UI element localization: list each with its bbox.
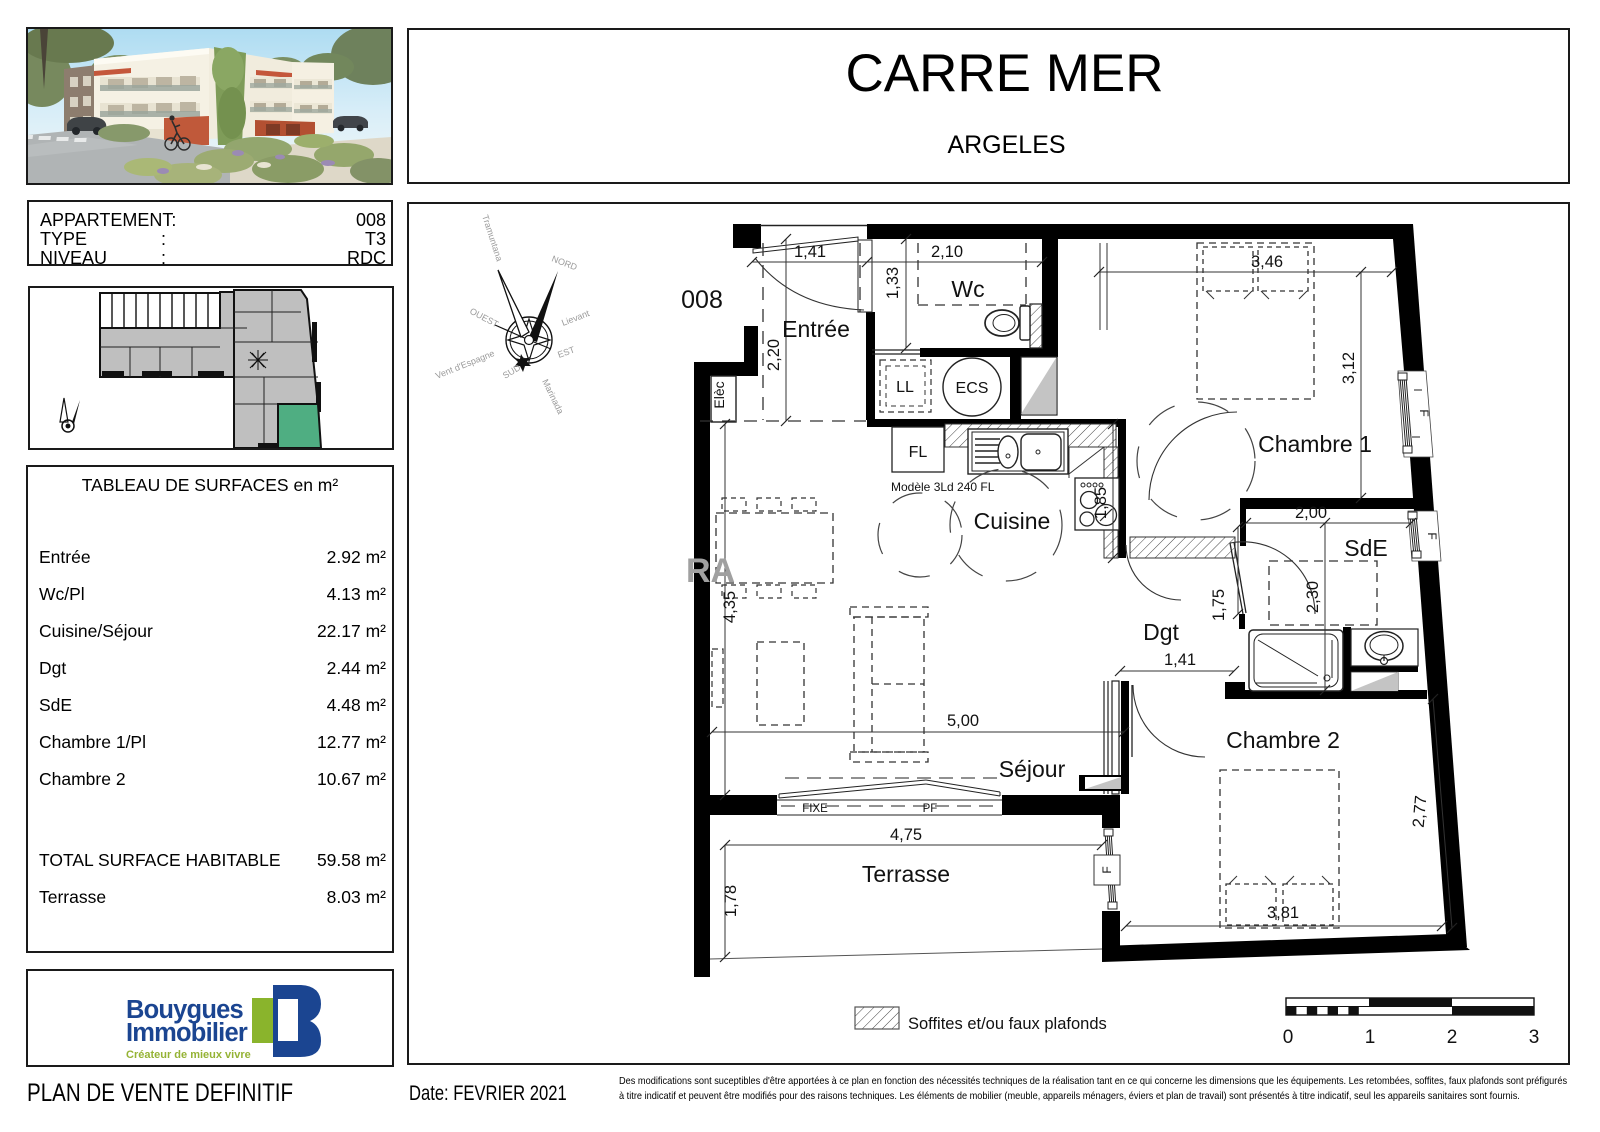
svg-text:1,75: 1,75	[1210, 589, 1228, 621]
svg-text:ECS: ECS	[956, 380, 989, 397]
svg-text:F: F	[1100, 866, 1114, 873]
svg-text:Terrasse: Terrasse	[862, 861, 950, 887]
svg-text:Vent d'Espagne: Vent d'Espagne	[434, 348, 496, 381]
svg-text:2,30: 2,30	[1304, 581, 1322, 613]
svg-text:1,85: 1,85	[1092, 487, 1110, 519]
svg-text:Soffites et/ou faux plafonds: Soffites et/ou faux plafonds	[908, 1015, 1107, 1033]
svg-text:2,00: 2,00	[1295, 504, 1327, 522]
svg-text:0: 0	[1283, 1027, 1294, 1048]
svg-text:2,20: 2,20	[765, 339, 783, 371]
svg-text:Créateur de mieux vivre: Créateur de mieux vivre	[126, 1049, 251, 1061]
svg-text:Immobilier: Immobilier	[126, 1019, 248, 1047]
svg-text:SdE: SdE	[1344, 535, 1387, 561]
svg-text:3,46: 3,46	[1251, 253, 1283, 271]
svg-text:3,12: 3,12	[1340, 352, 1358, 384]
svg-text:1,33: 1,33	[884, 267, 902, 299]
svg-text:F: F	[1417, 409, 1431, 416]
svg-text:Wc: Wc	[951, 276, 984, 302]
svg-text:2,10: 2,10	[931, 243, 963, 261]
svg-text:LL: LL	[896, 379, 914, 396]
svg-text:Séjour: Séjour	[999, 756, 1066, 782]
svg-text:2,77: 2,77	[1410, 795, 1431, 829]
svg-text:4,35: 4,35	[721, 591, 739, 623]
svg-text:Dgt: Dgt	[1143, 619, 1179, 645]
svg-text:1,41: 1,41	[1164, 651, 1196, 669]
svg-text:NORD: NORD	[550, 254, 579, 273]
svg-text:5,00: 5,00	[947, 712, 979, 730]
svg-text:OUEST: OUEST	[468, 306, 501, 330]
svg-text:EST: EST	[556, 344, 576, 360]
svg-text:008: 008	[681, 286, 723, 314]
svg-text:3,81: 3,81	[1267, 904, 1299, 922]
svg-text:RA: RA	[686, 552, 735, 590]
svg-text:F: F	[1425, 532, 1439, 539]
svg-text:1,41: 1,41	[794, 243, 826, 261]
svg-text:Lievant: Lievant	[560, 308, 591, 328]
svg-text:Modèle 3Ld 240 FL: Modèle 3Ld 240 FL	[891, 480, 995, 494]
svg-text:FL: FL	[909, 444, 928, 461]
svg-text:Entrée: Entrée	[782, 316, 850, 342]
svg-text:4,75: 4,75	[890, 826, 922, 844]
svg-text:Chambre 1: Chambre 1	[1258, 431, 1372, 457]
svg-text:Tramuntana: Tramuntana	[480, 214, 504, 263]
svg-text:Marinada: Marinada	[540, 377, 565, 415]
svg-text:FIXE: FIXE	[802, 803, 828, 815]
svg-text:PF: PF	[923, 803, 938, 815]
svg-text:1: 1	[1365, 1027, 1376, 1048]
svg-text:Chambre 2: Chambre 2	[1226, 727, 1340, 753]
svg-text:Elèc: Elèc	[711, 381, 727, 408]
svg-text:2: 2	[1447, 1027, 1458, 1048]
svg-text:Cuisine: Cuisine	[974, 508, 1051, 534]
svg-text:1,78: 1,78	[722, 885, 740, 917]
svg-text:3: 3	[1529, 1027, 1540, 1048]
